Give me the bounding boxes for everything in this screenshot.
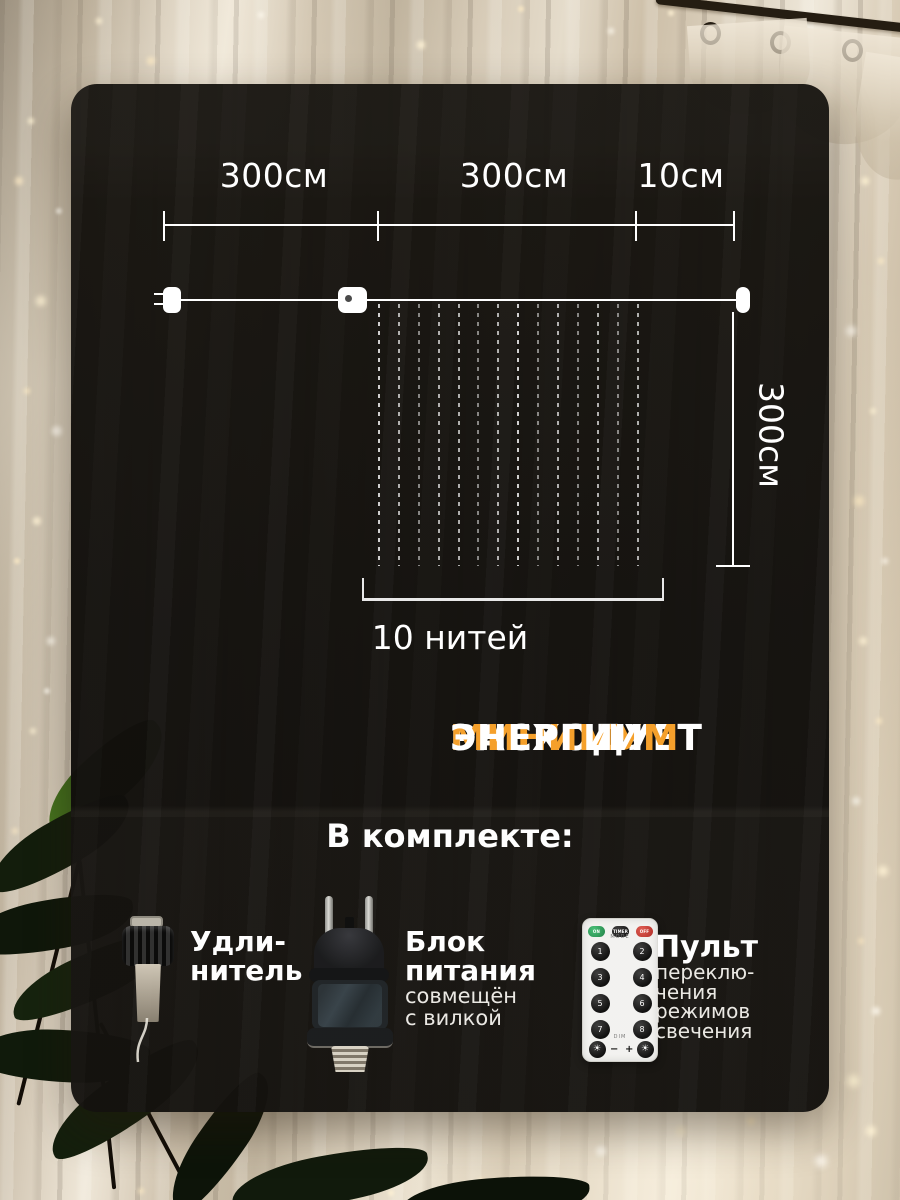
remote-dim-label: DIM [583,1034,657,1040]
remote-mode-6-button: 6 [633,994,652,1013]
remote-sub-line: свечения [655,1022,758,1042]
height-dimension-label: 300см [752,382,791,488]
remote-mode-3-button: 3 [591,968,610,987]
light-strand [477,304,479,566]
headline-pre: РАСХОДУЕТ [450,718,703,759]
light-strand [378,304,380,566]
headline-post: ЭНЕРГИИ [450,718,644,759]
height-dimension-tick [716,565,750,567]
psu-tab-icon [345,917,354,933]
remote-sub-line: переклю- [655,963,758,983]
light-strand [637,304,639,566]
remote-sub-line: режимов [655,1002,758,1022]
psu-plug-head-icon [314,928,384,976]
headline-highlight: МИНИМУМ [450,718,679,759]
end-cap-icon [736,287,750,313]
remote-control-graphic: ON TIMER OFF MODE 1 2 3 4 5 6 7 8 DIM ☀ … [582,918,658,1062]
remote-mode-1-button: 1 [591,942,610,961]
controller-box-icon [338,287,367,313]
remote-mode-8-button: 8 [633,1020,652,1039]
psu-panel-icon [318,984,382,1027]
remote-off-button: OFF [636,926,653,937]
light-strand [418,304,420,566]
strands-caption: 10 нитей [71,618,829,657]
power-supply-sub-line: с вилкой [405,1007,536,1029]
light-strand [597,304,599,566]
light-strand [617,304,619,566]
light-strand [517,304,519,566]
power-supply-label: Блок питания совмещён с вилкой [405,927,536,1029]
garland-wire [172,299,744,301]
power-supply-label-line: питания [405,956,536,985]
remote-mode-label: MODE [583,934,657,940]
light-strand [458,304,460,566]
ruler-tick [635,211,637,241]
ruler-label-end-segment: 10см [637,156,724,195]
remote-label: Пульт переклю- чения режимов свечения [655,932,758,1041]
light-strand [398,304,400,566]
plug-prong-icon [154,303,163,305]
extension-label-line: нитель [190,956,302,985]
extension-connector-icon [130,916,163,928]
extension-wire-icon [133,1018,163,1064]
bokeh-lights [0,0,6,6]
psu-body-icon [312,980,388,1030]
ruler-tick [377,211,379,241]
remote-minus-sign: − [610,1044,618,1055]
psu-prong-icon [365,896,373,934]
kit-heading: В комплекте: [71,817,829,855]
strands-bracket [362,578,664,601]
info-card: 300см 300см 10см 300см [71,84,829,1112]
remote-dim-up-button: ☀ [637,1041,654,1058]
remote-timer-button: TIMER [612,926,629,937]
power-supply-sub-line: совмещён [405,985,536,1007]
ruler-tick [163,211,165,241]
plug-icon [163,287,181,313]
extension-cap-icon [122,926,174,966]
light-strand [438,304,440,566]
height-dimension-line [732,312,734,566]
ruler-tick [733,211,735,241]
psu-collar-icon [309,968,389,982]
remote-on-button: ON [588,926,605,937]
psu-thread-icon [331,1046,369,1072]
plug-prong-icon [154,293,163,295]
remote-mode-5-button: 5 [591,994,610,1013]
controller-dot-icon [345,295,352,302]
product-infographic: 300см 300см 10см 300см [0,0,900,1200]
light-strand [577,304,579,566]
light-strand [557,304,559,566]
remote-mode-4-button: 4 [633,968,652,987]
remote-plus-sign: + [625,1044,633,1055]
psu-prong-icon [325,896,333,934]
ruler-label-curtain-width: 300см [460,156,569,195]
light-strand [537,304,539,566]
extension-body-icon [134,964,162,1022]
ruler-label-lead-wire: 300см [220,156,329,195]
extension-label: Удли- нитель [190,927,302,985]
remote-sub-line: чения [655,983,758,1003]
ruler-line [164,224,734,226]
remote-mode-2-button: 2 [633,942,652,961]
remote-mode-7-button: 7 [591,1020,610,1039]
extension-label-line: Удли- [190,927,302,956]
remote-label-line: Пульт [655,932,758,963]
light-strand [497,304,499,566]
psu-flange-icon [307,1028,393,1048]
power-supply-label-line: Блок [405,927,536,956]
remote-dim-down-button: ☀ [589,1041,606,1058]
